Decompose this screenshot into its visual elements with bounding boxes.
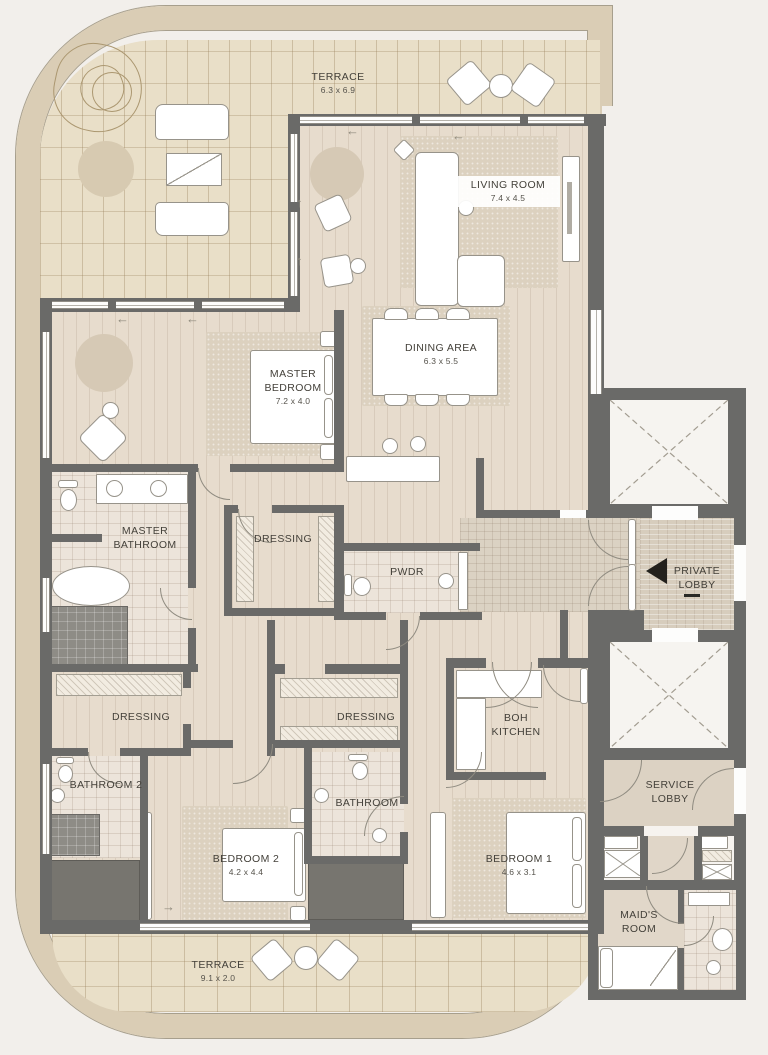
pillow <box>600 948 613 988</box>
lobby-side-opening <box>734 545 746 601</box>
wall <box>334 505 344 620</box>
terrace-round-table <box>294 946 318 970</box>
room-name: DRESSING <box>112 711 170 723</box>
wall <box>694 836 702 886</box>
door-panel <box>580 668 588 704</box>
pillow <box>294 832 303 896</box>
built-in-closet <box>308 862 404 920</box>
label-terrace-bottom: TERRACE 9.1 x 2.0 <box>168 958 268 985</box>
toilet-tank <box>344 574 352 596</box>
window[interactable] <box>42 764 50 854</box>
shaft-x-icon <box>606 852 640 876</box>
label-boh-kitchen: BOH KITCHEN <box>487 711 545 739</box>
label-bathroom-2: BATHROOM 2 <box>66 778 146 792</box>
shower-drain <box>706 960 721 975</box>
room-name: MAID'S ROOM <box>620 909 658 935</box>
wall <box>588 610 644 630</box>
living-sofa-long <box>415 152 459 306</box>
room-name: BOH KITCHEN <box>492 712 541 738</box>
window[interactable] <box>590 310 602 394</box>
elevator-x-icon <box>610 642 728 748</box>
window[interactable] <box>140 923 310 931</box>
wall <box>40 464 198 472</box>
pillow <box>572 817 582 861</box>
room-name: DRESSING <box>254 533 312 545</box>
window[interactable] <box>420 116 520 124</box>
terrace-coffee-table <box>166 153 222 186</box>
terrace-sofa-2 <box>155 202 229 236</box>
pillow <box>572 864 582 908</box>
room-name: BATHROOM 2 <box>70 779 143 791</box>
bar-stool-1 <box>382 438 398 454</box>
room-name: MASTER BEDROOM <box>264 368 321 394</box>
dining-chair <box>415 308 439 320</box>
entry-door-leaf[interactable] <box>628 564 636 611</box>
wall <box>334 543 480 551</box>
nightstand <box>290 906 306 921</box>
dining-chair <box>415 394 439 406</box>
door-closer-mark <box>684 594 700 597</box>
wall-opening <box>560 510 586 518</box>
wall <box>40 664 198 672</box>
tree-trunk-circle <box>92 72 132 112</box>
bed-fold-line <box>650 950 676 986</box>
room-name: DINING AREA <box>405 342 477 354</box>
master-side-table <box>102 402 119 419</box>
wall <box>267 664 285 674</box>
wall <box>183 740 233 748</box>
wall <box>224 505 238 513</box>
window[interactable] <box>412 923 588 931</box>
sink-icon <box>106 480 123 497</box>
wall <box>476 458 484 518</box>
slide-arrow-icon: → <box>162 900 175 913</box>
terrace-sofa-1 <box>155 104 229 140</box>
wall <box>678 948 684 990</box>
slide-arrow-icon: ← <box>346 124 359 137</box>
slide-arrow-icon: ← <box>186 312 199 325</box>
label-dining-area: DINING AREA 6.3 x 5.5 <box>389 341 493 368</box>
wardrobe <box>280 678 398 698</box>
wall <box>272 505 336 513</box>
shaft-x-icon <box>703 865 731 879</box>
label-terrace-top: TERRACE 6.3 x 6.9 <box>288 70 388 97</box>
wall <box>304 856 408 864</box>
tv-screen <box>567 182 572 234</box>
master-shower <box>48 606 128 668</box>
wall <box>267 740 408 748</box>
living-round-rug <box>310 147 364 201</box>
wall <box>640 836 648 886</box>
window[interactable] <box>42 332 50 458</box>
room-dims: 6.3 x 5.5 <box>389 356 493 367</box>
room-name: PWDR <box>390 566 424 578</box>
window[interactable] <box>290 134 298 202</box>
master-round-rug <box>75 334 133 392</box>
wall <box>596 826 644 836</box>
wardrobe <box>56 674 182 696</box>
label-bathroom: BATHROOM <box>327 796 407 810</box>
elevator-x-icon <box>610 400 728 504</box>
wall <box>224 608 336 616</box>
toilet-tank <box>58 480 78 488</box>
wall <box>40 534 102 542</box>
bar-stool-2 <box>410 436 426 452</box>
slide-arrow-icon: ← <box>116 312 129 325</box>
bathtub-icon <box>52 566 130 606</box>
room-dims: 9.1 x 2.0 <box>168 973 268 984</box>
room-name: BEDROOM 1 <box>486 853 553 865</box>
label-living-room: LIVING ROOM 7.4 x 4.5 <box>456 176 560 207</box>
room-name: MASTER BATHROOM <box>113 525 176 551</box>
wall <box>230 464 336 472</box>
wall <box>183 664 191 688</box>
toilet-icon <box>352 762 368 780</box>
sink-icon <box>438 573 454 589</box>
room-name: SERVICE LOBBY <box>646 779 695 805</box>
room-dims: 4.6 x 3.1 <box>475 867 563 878</box>
toilet-icon <box>712 928 733 951</box>
wall <box>736 880 746 1000</box>
room-name: TERRACE <box>312 71 365 83</box>
wall <box>224 513 232 608</box>
floor-plan: ← ← ← ← → ↑ ↑ TERRACE 6.3 x 6.9 LIVING R… <box>0 0 768 1055</box>
wall <box>40 748 88 756</box>
slide-arrow-icon: ↑ <box>296 196 303 209</box>
living-armchair-2 <box>320 254 355 289</box>
label-master-bathroom: MASTER BATHROOM <box>99 524 191 552</box>
terrace-round-table <box>489 74 513 98</box>
label-pwdr: PWDR <box>377 565 437 579</box>
bar-counter <box>346 456 440 482</box>
wall <box>334 612 386 620</box>
wall <box>698 826 744 836</box>
living-side-table <box>350 258 366 274</box>
dining-chair <box>446 308 470 320</box>
label-bedroom-2: BEDROOM 2 4.2 x 4.4 <box>202 852 290 879</box>
toilet-tank <box>56 757 74 764</box>
wall <box>120 748 183 756</box>
room-dims: 4.2 x 4.4 <box>202 867 290 878</box>
wall <box>304 748 312 860</box>
toilet-icon <box>60 489 77 511</box>
pocket-door <box>458 552 468 610</box>
window[interactable] <box>528 116 584 124</box>
sink-icon <box>50 788 65 803</box>
wall <box>267 620 275 756</box>
room-name: BEDROOM 2 <box>213 853 280 865</box>
room-name: TERRACE <box>192 959 245 971</box>
label-dressing-center: DRESSING <box>321 710 411 724</box>
dining-chair <box>446 394 470 406</box>
label-dressing-left: DRESSING <box>96 710 186 724</box>
label-service-lobby: SERVICE LOBBY <box>638 778 702 806</box>
window[interactable] <box>52 301 108 309</box>
wardrobe <box>430 812 446 918</box>
window[interactable] <box>116 301 194 309</box>
sink-icon <box>150 480 167 497</box>
room-name: PRIVATE LOBBY <box>674 565 720 591</box>
room-dims: 7.2 x 4.0 <box>249 396 337 407</box>
label-maids-room: MAID'S ROOM <box>607 908 671 936</box>
sink-icon <box>700 836 728 849</box>
label-master-bedroom: MASTER BEDROOM 7.2 x 4.0 <box>249 367 337 408</box>
elevator-door-2 <box>652 628 698 642</box>
room-name: BATHROOM <box>335 797 398 809</box>
shower <box>48 814 100 856</box>
band-mask <box>602 106 618 392</box>
label-bedroom-1: BEDROOM 1 4.6 x 3.1 <box>475 852 563 879</box>
duct-shaft <box>702 850 732 862</box>
room-name: DRESSING <box>337 711 395 723</box>
room-name: LIVING ROOM <box>471 179 545 191</box>
wall <box>140 748 148 922</box>
terrace-bottom-floor <box>52 934 600 1012</box>
service-entry-opening <box>734 768 746 814</box>
elevator-door-1 <box>652 506 698 520</box>
sink-icon <box>604 836 638 849</box>
wall <box>420 612 482 620</box>
sink-icon <box>688 892 730 906</box>
entry-door-leaf[interactable] <box>628 519 636 566</box>
toilet-icon <box>353 577 371 596</box>
slide-arrow-icon: ↑ <box>296 254 303 267</box>
living-sofa-chaise <box>457 255 505 307</box>
label-private-lobby: PRIVATE LOBBY <box>664 564 730 592</box>
wall <box>588 990 746 1000</box>
wall <box>325 664 407 674</box>
toilet-tank <box>348 754 368 761</box>
terrace-round-planter <box>78 141 134 197</box>
dining-chair <box>384 308 408 320</box>
label-dressing-master: DRESSING <box>238 532 328 546</box>
window[interactable] <box>202 301 284 309</box>
dining-chair <box>384 394 408 406</box>
built-in-closet <box>46 860 140 922</box>
room-dims: 6.3 x 6.9 <box>288 85 388 96</box>
slide-arrow-icon: ← <box>452 129 465 142</box>
window[interactable] <box>42 578 50 632</box>
wall <box>588 880 598 1000</box>
room-dims: 7.4 x 4.5 <box>457 193 559 204</box>
